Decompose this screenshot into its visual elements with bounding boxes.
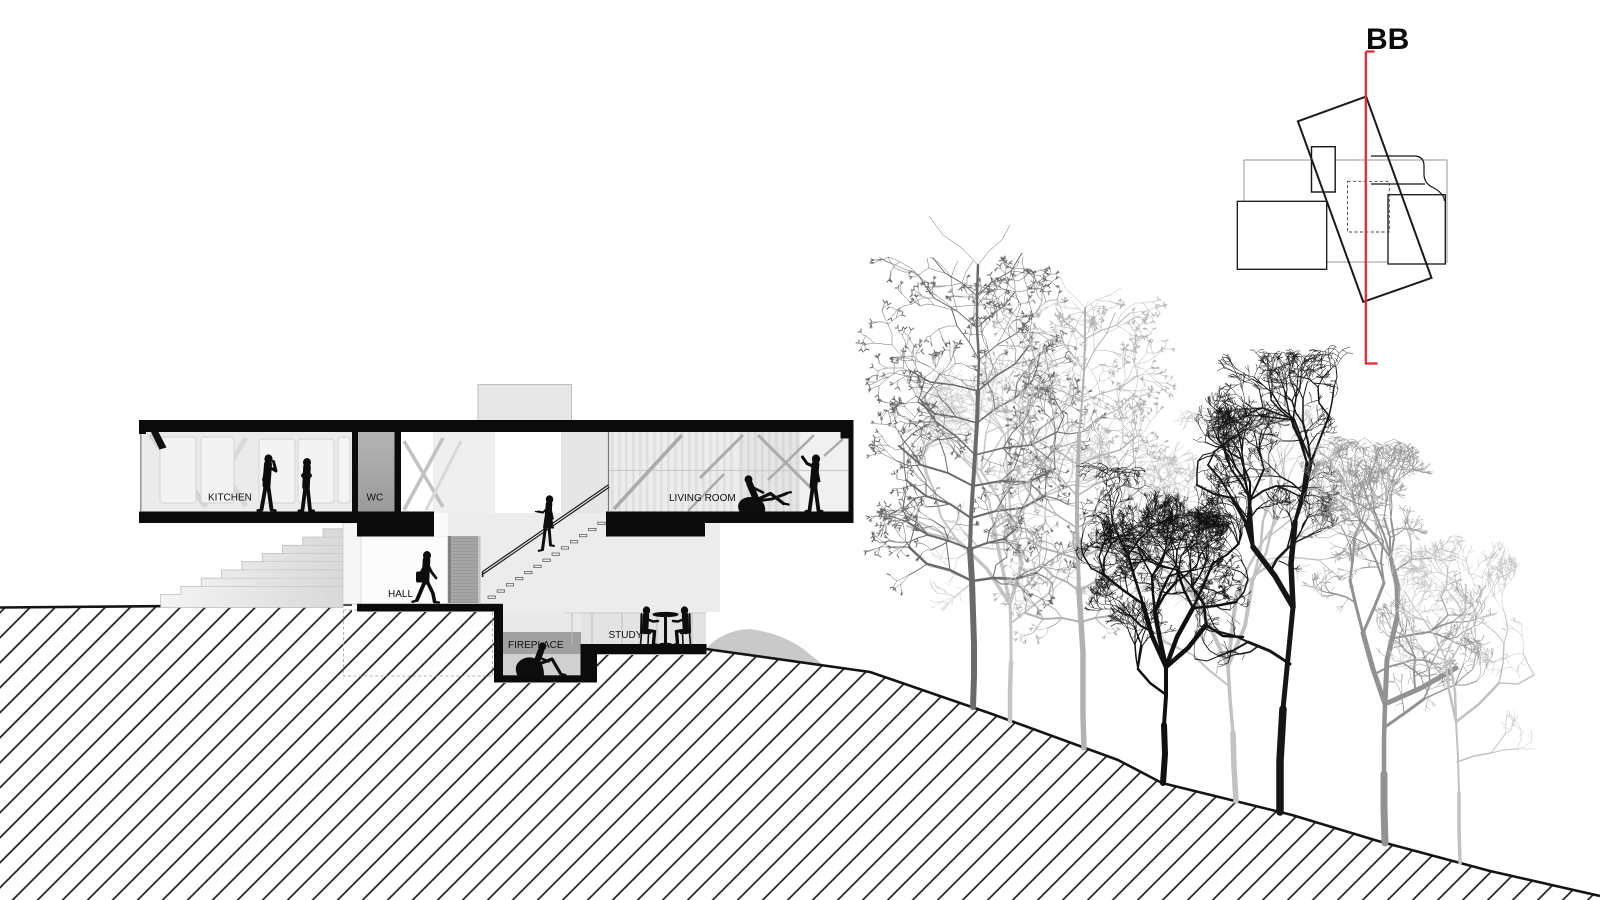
svg-text:HALL: HALL	[388, 589, 413, 600]
svg-text:LIVING ROOM: LIVING ROOM	[669, 493, 736, 504]
svg-text:KITCHEN: KITCHEN	[208, 493, 252, 504]
svg-text:STUDY: STUDY	[609, 630, 643, 641]
svg-text:FIREPLACE: FIREPLACE	[508, 640, 564, 651]
svg-text:BB: BB	[1366, 23, 1409, 56]
svg-text:WC: WC	[367, 493, 384, 504]
